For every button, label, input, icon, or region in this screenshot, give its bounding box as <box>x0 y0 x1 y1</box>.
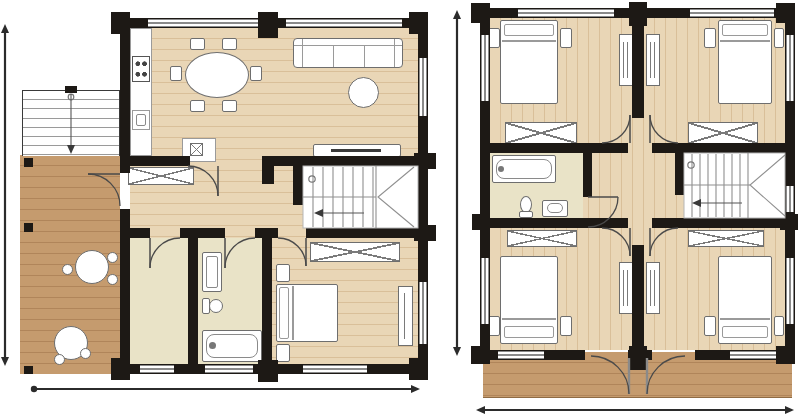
door-bedroom-ground <box>278 238 306 266</box>
door-bedroom-top-left <box>602 115 630 143</box>
door-bedroom-top-right <box>650 115 678 143</box>
door-bedroom-bottom-left <box>602 228 630 256</box>
door-bathroom-ground <box>225 238 255 268</box>
stair-direction-arrow <box>67 145 75 154</box>
staircase-ground <box>303 166 418 228</box>
dimension-line-upper-bottom <box>476 406 794 414</box>
staircase-upper <box>684 153 785 218</box>
linework-overlay <box>0 0 800 417</box>
dimension-line-ground-bottom <box>31 385 420 393</box>
dimension-line-middle <box>453 10 461 356</box>
dimension-line-left <box>1 24 9 366</box>
exterior-stair-guide <box>67 94 75 154</box>
door-utility <box>150 238 180 268</box>
door-bedroom-bottom-right <box>650 228 678 256</box>
door-entry <box>88 174 120 206</box>
door-kitchen-hall <box>188 166 218 196</box>
door-balcony-right <box>647 356 685 394</box>
door-bathroom-upper <box>588 197 618 227</box>
floor-plan-canvas <box>0 0 800 417</box>
door-balcony-left <box>591 356 629 394</box>
